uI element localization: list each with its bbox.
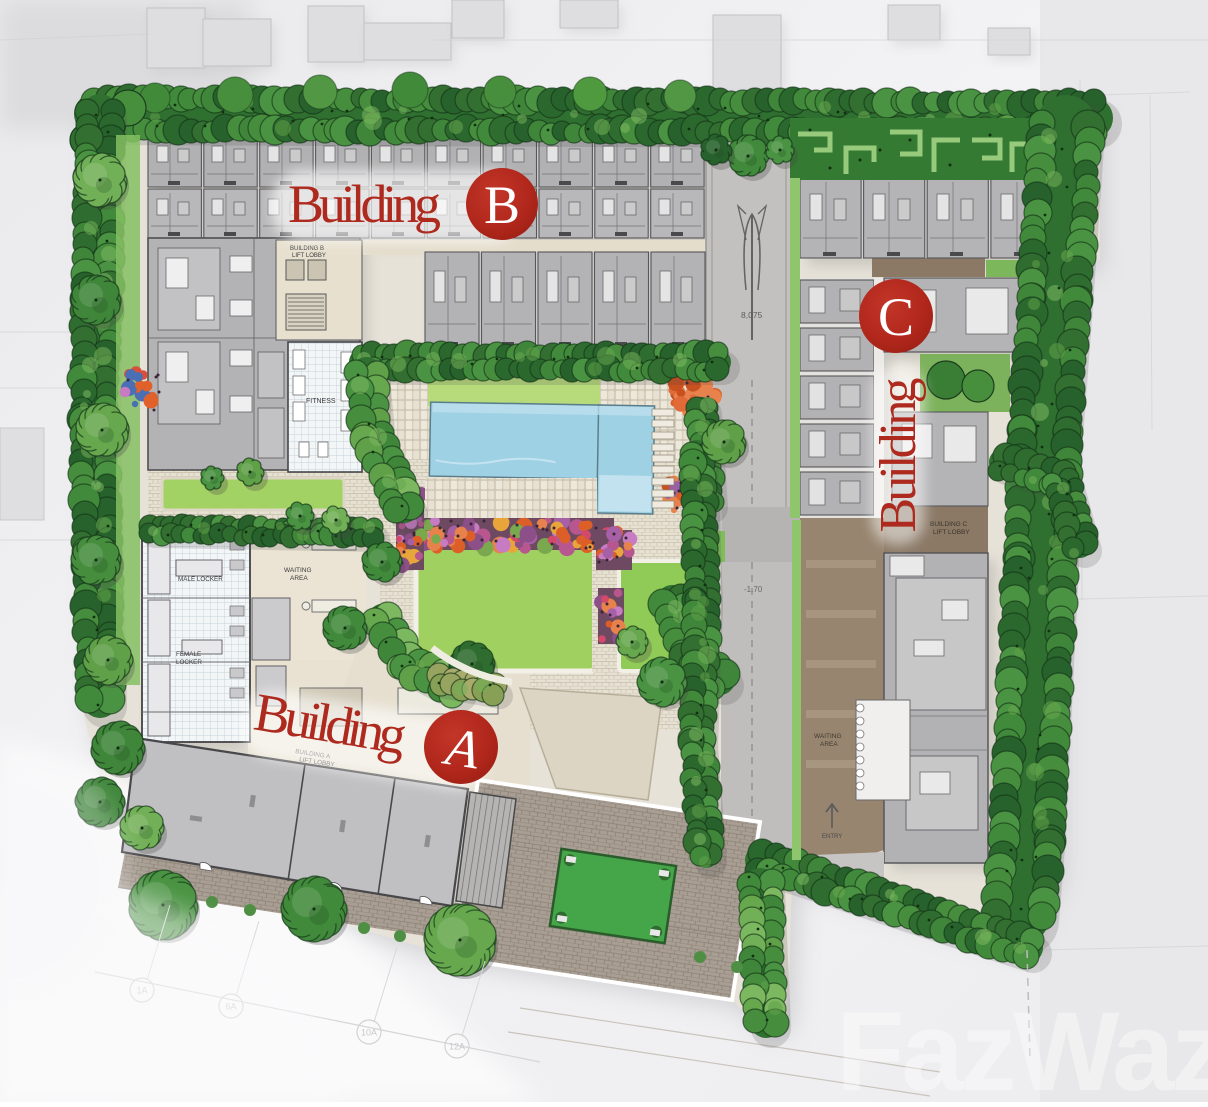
- svg-text:BUILDING C: BUILDING C: [930, 521, 968, 528]
- svg-text:Building: Building: [288, 174, 441, 234]
- svg-text:12A: 12A: [449, 1042, 465, 1052]
- svg-text:-1.70: -1.70: [744, 585, 763, 594]
- svg-text:WAITING: WAITING: [814, 733, 842, 740]
- svg-text:LIFT LOBBY: LIFT LOBBY: [292, 253, 326, 259]
- svg-text:LOCKER: LOCKER: [176, 659, 202, 666]
- svg-text:FEMALE: FEMALE: [176, 651, 201, 658]
- svg-text:AREA: AREA: [290, 575, 308, 582]
- svg-text:WAITING: WAITING: [284, 567, 312, 574]
- svg-text:10A: 10A: [361, 1028, 377, 1038]
- svg-text:ENTRY: ENTRY: [822, 834, 842, 840]
- svg-text:BUILDING B: BUILDING B: [290, 246, 324, 252]
- svg-text:MALE LOCKER: MALE LOCKER: [178, 576, 223, 583]
- svg-text:8,075: 8,075: [741, 310, 763, 320]
- svg-text:B: B: [484, 175, 520, 235]
- svg-text:FITNESS: FITNESS: [306, 398, 336, 405]
- svg-text:Building: Building: [870, 378, 927, 533]
- svg-text:FazWaz: FazWaz: [836, 989, 1208, 1102]
- svg-text:AREA: AREA: [820, 741, 838, 748]
- svg-text:C: C: [878, 287, 914, 347]
- svg-text:LIFT LOBBY: LIFT LOBBY: [933, 529, 970, 536]
